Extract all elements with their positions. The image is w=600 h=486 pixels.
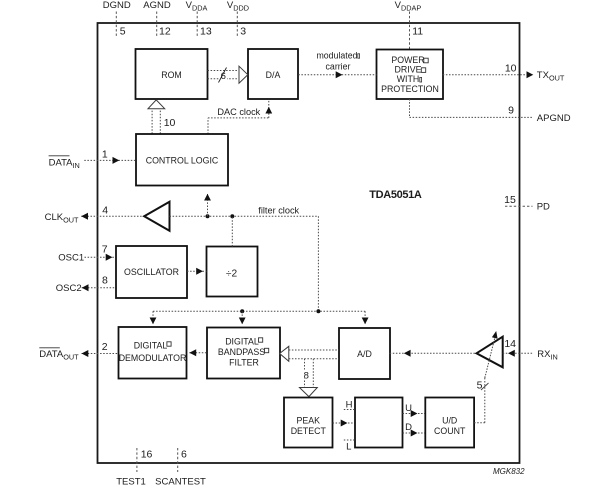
svg-text:PROTECTION: PROTECTION — [381, 84, 439, 94]
svg-text:U: U — [405, 403, 412, 414]
svg-text:10: 10 — [164, 117, 176, 129]
svg-text:7: 7 — [102, 244, 108, 256]
svg-text:VDDD: VDDD — [227, 0, 249, 13]
svg-text:A/D: A/D — [357, 349, 372, 359]
svg-text:COUNT: COUNT — [434, 426, 466, 436]
svg-text:H: H — [346, 399, 353, 410]
svg-text:DGND: DGND — [103, 0, 131, 11]
svg-text:APGND: APGND — [537, 113, 571, 124]
svg-text:VDDAP: VDDAP — [395, 0, 422, 13]
svg-text:10: 10 — [505, 63, 517, 75]
svg-text:DRIVE: DRIVE — [395, 65, 422, 75]
svg-text:13: 13 — [200, 26, 212, 38]
svg-text:12: 12 — [159, 26, 171, 38]
svg-text:4: 4 — [102, 204, 108, 216]
svg-text:9: 9 — [508, 105, 514, 117]
svg-text:8: 8 — [102, 274, 108, 286]
svg-text:÷2: ÷2 — [226, 268, 238, 279]
svg-text:D/A: D/A — [266, 70, 281, 80]
svg-text:11: 11 — [412, 26, 423, 38]
svg-text:CONTROL LOGIC: CONTROL LOGIC — [146, 156, 219, 166]
svg-text:5: 5 — [477, 380, 483, 392]
svg-text:FILTER: FILTER — [229, 358, 259, 368]
svg-text:6: 6 — [221, 71, 226, 82]
svg-text:DIGITAL: DIGITAL — [134, 341, 168, 351]
svg-text:BANDPASS: BANDPASS — [218, 347, 265, 357]
svg-text:POWER: POWER — [391, 55, 424, 65]
svg-text:ROM: ROM — [161, 70, 182, 80]
svg-text:VDDA: VDDA — [186, 0, 208, 13]
svg-text:DEMODULATOR: DEMODULATOR — [119, 353, 187, 363]
svg-text:TDA5051A: TDA5051A — [369, 189, 422, 201]
svg-text:modulated: modulated — [316, 51, 357, 61]
svg-text:D: D — [405, 422, 412, 433]
svg-text:carrier: carrier — [326, 62, 351, 72]
svg-text:DETECT: DETECT — [291, 426, 327, 436]
svg-text:6: 6 — [181, 449, 187, 461]
svg-text:1: 1 — [102, 148, 108, 160]
svg-text:OSC1: OSC1 — [58, 252, 84, 263]
svg-text:DATAOUT: DATAOUT — [39, 349, 79, 362]
svg-text:DATAIN: DATAIN — [49, 157, 80, 170]
svg-text:14: 14 — [504, 338, 516, 350]
svg-text:OSCILLATOR: OSCILLATOR — [124, 267, 179, 277]
svg-text:L: L — [346, 441, 351, 452]
svg-text:MGK832: MGK832 — [493, 467, 525, 476]
svg-text:U/D: U/D — [442, 416, 457, 426]
svg-text:OSC2: OSC2 — [56, 283, 82, 294]
svg-text:PD: PD — [537, 202, 550, 213]
svg-text:2: 2 — [102, 341, 108, 353]
svg-text:15: 15 — [504, 194, 516, 206]
svg-text:TXOUT: TXOUT — [537, 70, 565, 83]
svg-text:SCANTEST: SCANTEST — [155, 477, 206, 486]
svg-text:5: 5 — [120, 26, 126, 38]
svg-text:DIGITAL: DIGITAL — [225, 337, 259, 347]
svg-text:RXIN: RXIN — [537, 349, 558, 362]
svg-text:3: 3 — [240, 26, 246, 38]
svg-text:16: 16 — [141, 449, 153, 461]
svg-text:WITH: WITH — [397, 74, 419, 84]
svg-text:8: 8 — [304, 371, 309, 382]
svg-text:AGND: AGND — [143, 0, 171, 11]
svg-text:CLKOUT: CLKOUT — [45, 212, 79, 225]
svg-text:TEST1: TEST1 — [116, 477, 146, 486]
svg-text:PEAK: PEAK — [297, 416, 321, 426]
svg-text:DAC clock: DAC clock — [217, 107, 260, 117]
svg-text:filter clock: filter clock — [258, 205, 299, 215]
